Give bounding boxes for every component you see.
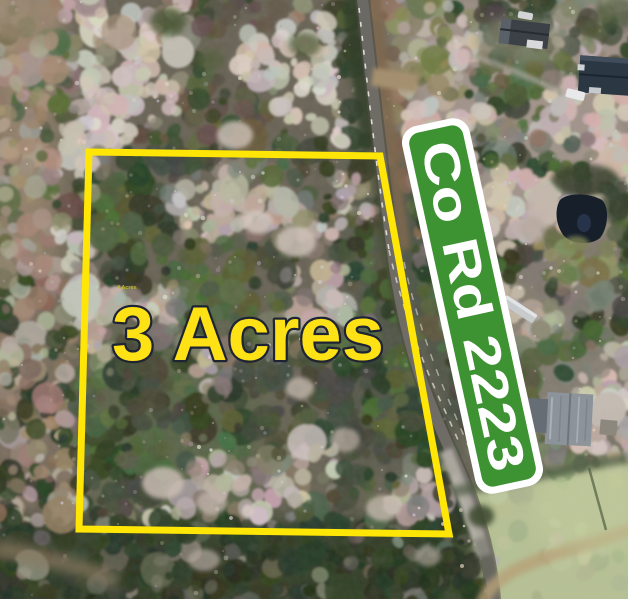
svg-text:4 Acres: 4 Acres xyxy=(117,285,137,291)
svg-text:3 Acres: 3 Acres xyxy=(112,292,384,377)
